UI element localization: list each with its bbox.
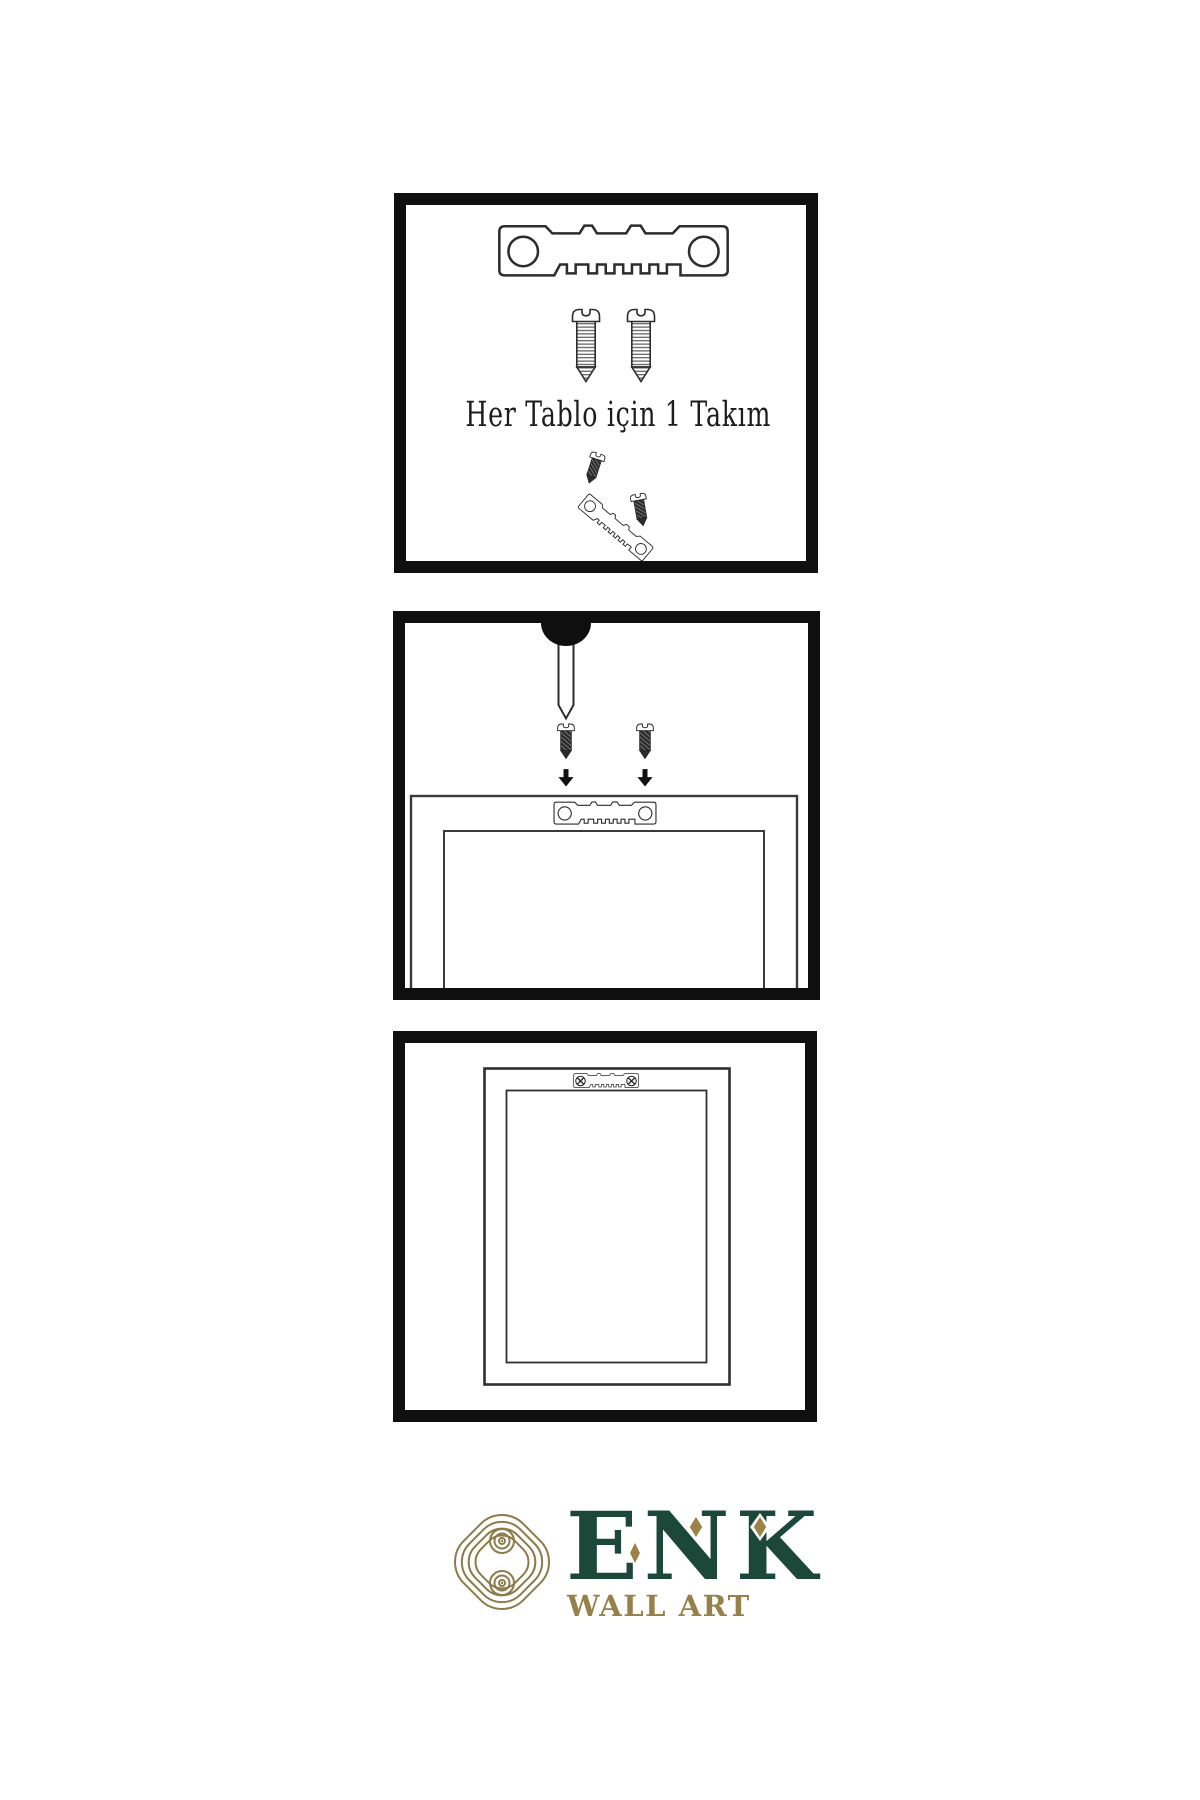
arrow-down-icon (558, 769, 573, 786)
crosshead-screw-icon (627, 1076, 637, 1086)
arrow-down-icon (637, 769, 652, 786)
angled-screw-icon (582, 451, 606, 485)
frame-inner-outline (444, 831, 764, 988)
step-1-caption-text: Her Tablo için 1 Takım (465, 395, 771, 435)
step-2-illustration (405, 623, 808, 988)
hung-frame-inner-outline (507, 1091, 707, 1363)
step-2-panel (393, 611, 820, 1000)
step-1-panel: Her Tablo için 1 Takım (394, 193, 818, 573)
screw-icon (628, 310, 655, 382)
dark-screw-icon (637, 724, 654, 759)
instruction-sheet: Her Tablo için 1 Takım (0, 0, 1200, 1800)
crosshead-screw-icon (576, 1076, 586, 1086)
sawtooth-hanger-icon (554, 802, 656, 824)
brand-name: ENK (566, 1500, 823, 1594)
step-1-illustration (406, 205, 806, 561)
step-3-illustration (405, 1043, 805, 1410)
angled-screw-icon (630, 493, 651, 527)
step-3-panel (393, 1031, 817, 1422)
sawtooth-hanger-icon (499, 226, 727, 276)
step-1-caption: Her Tablo için 1 Takım (406, 395, 806, 435)
brand-subtitle: WALL ART (567, 1592, 751, 1621)
screw-icon (573, 310, 600, 382)
enk-knot-logo-icon (440, 1497, 564, 1627)
nail-head-icon (541, 623, 591, 646)
dark-screw-icon (558, 724, 575, 759)
